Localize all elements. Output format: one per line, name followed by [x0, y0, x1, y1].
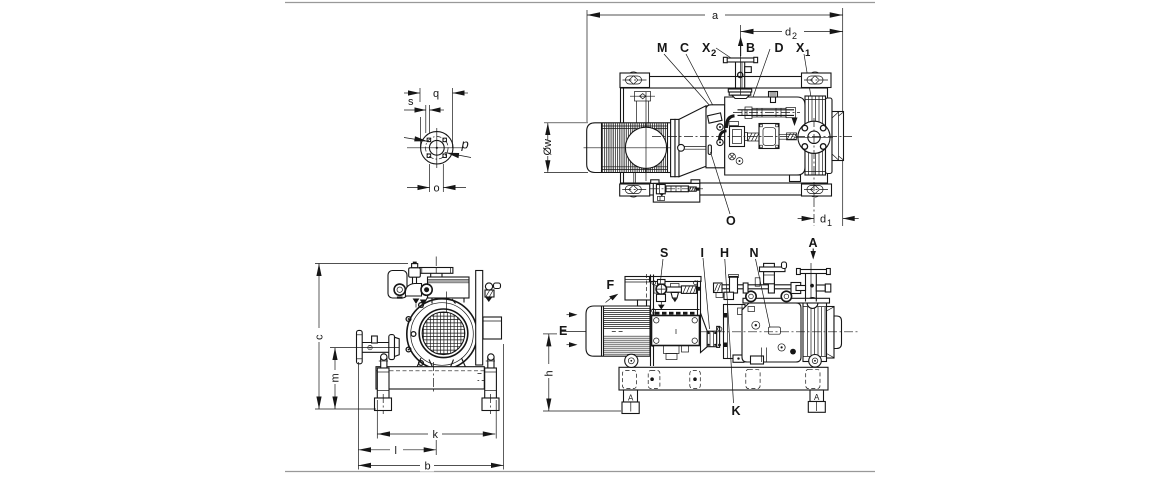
svg-text:m: m: [330, 373, 342, 382]
svg-text:B: B: [746, 41, 755, 55]
svg-text:l: l: [395, 445, 397, 457]
svg-text:q: q: [433, 88, 439, 100]
svg-text:M: M: [657, 41, 667, 55]
svg-text:d: d: [820, 214, 826, 226]
svg-text:a: a: [712, 10, 719, 22]
svg-text:d: d: [785, 27, 791, 39]
svg-text:A: A: [809, 236, 818, 250]
svg-text:2: 2: [792, 31, 797, 41]
svg-text:F: F: [607, 278, 615, 292]
svg-text:h: h: [544, 370, 556, 376]
svg-text:A: A: [628, 394, 634, 403]
svg-text:C: C: [680, 41, 689, 55]
svg-text:I: I: [701, 246, 704, 260]
svg-text:k: k: [433, 429, 439, 441]
svg-text:s: s: [408, 96, 414, 108]
svg-text:X: X: [702, 41, 711, 55]
svg-text:A: A: [814, 393, 820, 402]
svg-text:b: b: [425, 461, 431, 473]
svg-text:D: D: [775, 41, 784, 55]
svg-text:E: E: [559, 324, 567, 338]
svg-text:S: S: [660, 246, 668, 260]
svg-text:o: o: [434, 183, 440, 195]
svg-text:p: p: [461, 137, 469, 152]
svg-text:1: 1: [827, 218, 832, 228]
svg-text:X: X: [796, 41, 805, 55]
svg-text:H: H: [720, 246, 729, 260]
svg-text:N: N: [750, 246, 759, 260]
svg-text:c: c: [314, 334, 326, 340]
svg-text:2: 2: [711, 48, 716, 59]
svg-text:Øw: Øw: [542, 139, 554, 156]
svg-text:O: O: [726, 214, 736, 228]
svg-text:K: K: [732, 404, 741, 418]
svg-text:1: 1: [805, 48, 811, 59]
